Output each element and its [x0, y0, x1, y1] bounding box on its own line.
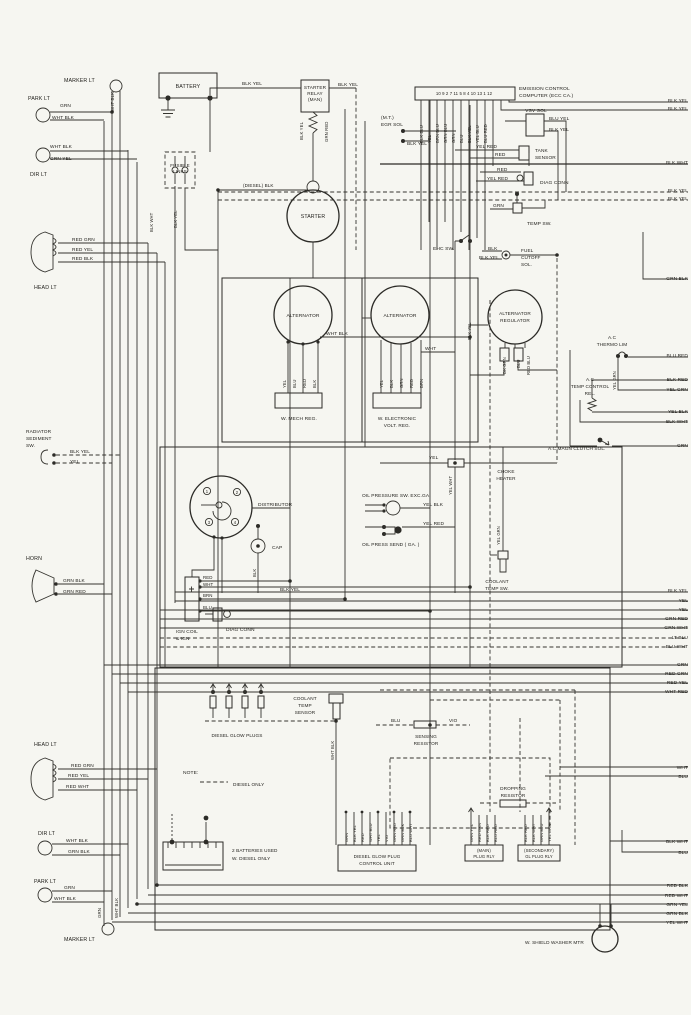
wire — [334, 719, 338, 723]
distributor-terminal-number: 4 — [234, 520, 237, 525]
wire-label: RED YEL — [72, 247, 93, 253]
head-lt-top — [31, 232, 165, 272]
distributor-terminal-number: 3 — [208, 520, 211, 525]
marker-lt-top-label: MARKER LT — [64, 78, 95, 84]
wire-label: GRN YEL — [666, 902, 688, 908]
wire — [525, 815, 549, 845]
wire-label: RED GRN — [665, 671, 688, 677]
wire-label: VIO — [384, 835, 389, 842]
starter-label: STARTER — [301, 214, 326, 220]
wire — [498, 551, 508, 559]
wire-label: GRN WHT — [664, 625, 688, 631]
coolant-temp-sw-label: COOLANT — [485, 579, 508, 584]
temp-sw-label: TEMP SW. — [527, 221, 552, 227]
wire-label: RED — [497, 167, 508, 173]
wire — [505, 254, 508, 257]
fuel-cutoff-sol-label: SOL. — [521, 262, 532, 267]
wire-label: GRN RED — [392, 823, 397, 842]
wire — [135, 902, 139, 906]
wire-label: WHT RED — [665, 689, 688, 695]
wire-label: BLK YEL — [549, 127, 569, 133]
wire-label: RED WHT — [66, 784, 89, 790]
alternator1-label: ALTERNATOR — [286, 313, 319, 319]
ign-coil-label: & IGN — [176, 636, 190, 642]
radiator-sediment-sw-label: SEDIMENT — [26, 436, 52, 442]
wire-label: BLU — [459, 135, 464, 143]
wire-label: YEL — [376, 833, 381, 842]
wire-label: BLK WHT — [531, 823, 536, 842]
wire — [393, 811, 396, 814]
dual-battery-note: W. DIESEL ONLY — [232, 856, 271, 861]
wire — [204, 816, 209, 821]
wire — [224, 611, 231, 618]
wire — [220, 536, 223, 539]
wire — [36, 108, 50, 122]
wire — [243, 684, 248, 718]
wire — [600, 440, 609, 445]
wire — [110, 80, 122, 92]
wire-label: BLK YEL — [407, 141, 427, 147]
wire — [409, 811, 412, 814]
wire-label: RED GRN — [477, 823, 482, 842]
wire — [256, 544, 260, 548]
head-lt-bottom-label: HEAD LT — [34, 742, 57, 748]
wire-label: BLU — [391, 718, 401, 723]
wire-label: GRN RED — [63, 589, 86, 595]
wire-label: WHT BLU — [368, 823, 373, 842]
wire — [258, 696, 264, 708]
wire — [428, 609, 432, 613]
fuel-cutoff-sol-label: CUTOFF — [521, 255, 541, 260]
wire — [185, 577, 199, 621]
oil-press-send-label: OIL PRESS SEND ( GA. ) — [362, 542, 420, 548]
wire — [526, 114, 544, 136]
wire-label: RED BLU — [526, 356, 531, 375]
alternator-mech — [274, 286, 470, 408]
elec-reg-label: W. ELECTRONIC — [378, 416, 417, 421]
distributor-terminal-number: 1 — [206, 489, 209, 494]
alternator2-label: ALTERNATOR — [383, 313, 416, 319]
wire-label: RED — [360, 833, 365, 842]
wire — [165, 95, 170, 100]
wire-label: WHT — [425, 346, 436, 352]
wire-label: RED — [302, 379, 307, 388]
wire — [31, 758, 53, 800]
wire — [301, 342, 304, 345]
wire-label: (DIESEL) BLK — [243, 183, 274, 188]
sensing-resistor-label: SENSING — [415, 734, 437, 739]
wire — [242, 684, 248, 718]
wire-label: GRN — [64, 885, 75, 891]
wire — [471, 815, 495, 845]
diag-conn-left-label: DIAG CONN — [226, 627, 255, 633]
wire-label: BLU — [292, 380, 297, 388]
wire-label: GRN YEL — [50, 156, 72, 162]
wire — [222, 278, 478, 442]
wire — [414, 721, 436, 728]
wire-label: GRN BLK — [666, 276, 688, 282]
wire-label: DK GRN — [502, 357, 507, 374]
egr-sol-label: EGR SOL — [381, 122, 403, 128]
wire-label: BRN BLU — [435, 124, 440, 143]
wire — [618, 358, 688, 390]
wire — [421, 100, 485, 250]
wiring-diagram-page: MARKER LTPARK LTGRNWHT BLKDIR LTWHT BLKG… — [0, 0, 691, 1015]
park-lt-bottom-label: PARK LT — [34, 879, 57, 885]
wire-label: BRN — [203, 593, 213, 598]
temp-sw — [490, 192, 545, 213]
wire — [609, 924, 613, 928]
wire-label: GRN — [451, 133, 456, 143]
wire — [513, 203, 522, 213]
wire — [469, 808, 474, 815]
wire — [52, 453, 56, 457]
wire-label: RED WHT — [665, 893, 688, 899]
wire-label: BLU — [678, 850, 688, 856]
wire-label: YEL BLU — [475, 125, 480, 143]
wire-label: YEL GRN — [666, 387, 688, 393]
wire — [32, 570, 54, 602]
tank-sensor — [380, 146, 688, 166]
mech-reg-label: W. MECH REG. — [281, 416, 317, 422]
wire-label: YEL — [679, 607, 689, 613]
wire-label: BLK YEL — [338, 82, 358, 88]
wire — [453, 461, 457, 465]
left-bus-wires — [104, 92, 218, 926]
horn — [32, 570, 112, 602]
wire-label: BLU — [678, 774, 688, 780]
alt-regulator-label: ALTERNATOR — [499, 311, 531, 316]
diesel-dashed-routing — [380, 690, 575, 845]
fusible-links-label: LINKS — [173, 169, 187, 174]
washer-motor — [592, 904, 618, 952]
ac-magn-clutch-sol — [570, 438, 688, 446]
wire-label: GRN — [60, 103, 71, 109]
wire-label: WHT — [677, 765, 688, 771]
head-lt-top-label: HEAD LT — [34, 285, 57, 291]
wire-label: GRN RED — [665, 616, 688, 622]
wire-label: BLK YEL — [280, 587, 300, 593]
wire — [102, 923, 114, 935]
wire — [401, 129, 405, 133]
wire-label: BLK WHT — [666, 839, 688, 845]
washer-motor-label: W. SHIELD WASHER MTR — [525, 940, 584, 945]
wire — [161, 100, 175, 117]
starter-relay-label: RELAY — [307, 91, 323, 96]
ecc-label: EMISSION CONTROL — [519, 86, 570, 92]
wire-label: YEL RED — [423, 521, 444, 527]
wire-label: BLK WHT — [666, 160, 688, 166]
cap-label: CAP — [272, 545, 282, 551]
trunk-wires — [104, 100, 688, 922]
egr-sol-label: (M.T.) — [381, 115, 394, 121]
wire-label: BLK YEL — [467, 322, 472, 340]
dual-battery-note: 2 BATTERIES USED — [232, 848, 278, 853]
wire-label: BLK YEL — [668, 196, 688, 202]
wire-label: YEL GRN — [612, 371, 617, 390]
wire-label: YEL — [70, 459, 80, 465]
wire — [54, 592, 58, 596]
battery-label: BATTERY — [176, 84, 201, 90]
wire — [256, 524, 260, 528]
ac-thermo-label: THERMO LIM — [597, 342, 627, 347]
wire-label: GRN — [399, 378, 404, 388]
ac-temp-control-label: REL. — [585, 391, 596, 396]
wire — [361, 811, 364, 814]
dropping-resistor-label: DROPPING — [500, 786, 526, 791]
wire-label: GRN BLK — [400, 824, 405, 842]
wire-label: WHT BLK — [330, 741, 335, 760]
tank-sensor-label: TANK — [535, 148, 549, 154]
glow-control-unit-label: CONTROL UNIT — [359, 861, 395, 866]
wire-label: YEL — [379, 379, 384, 388]
wire — [170, 840, 175, 845]
ac-thermo-label: A.C — [608, 335, 617, 340]
wire — [168, 842, 216, 848]
wire — [394, 526, 401, 533]
wire-label: BLK WHT — [149, 212, 154, 232]
wire-label: BLU RED — [667, 353, 689, 359]
wire-label: YEL RED — [476, 144, 497, 150]
starter-relay-label: (MAN) — [308, 97, 322, 102]
sensing-resistor-label: RESISTOR — [414, 741, 439, 746]
wire — [345, 811, 348, 814]
wire — [52, 461, 56, 465]
diag-conn-right-label: DIAG CONN — [540, 180, 569, 186]
wire — [211, 684, 216, 718]
wire — [309, 112, 317, 133]
wire-label: BLK YEL — [668, 588, 688, 594]
starter-relay-label: STARTER — [304, 85, 327, 90]
marker-lt-bottom-label: MARKER LT — [64, 937, 95, 943]
wire-label: BLK YEL — [299, 121, 304, 140]
coolant-temp-sensor-label: TEMP — [298, 703, 311, 708]
ac-magn-clutch-label: A.C MAGN CLUTCH SOL. — [548, 446, 605, 451]
starter — [218, 181, 339, 668]
radiator-sediment-sw-label: SW. — [26, 443, 35, 449]
wire-label: BLU — [516, 360, 521, 368]
wire — [428, 723, 432, 727]
wire — [547, 808, 552, 815]
wire — [36, 148, 50, 162]
wire — [163, 842, 223, 870]
wire — [500, 559, 506, 572]
wire-label: GRN YEL — [469, 823, 474, 842]
wire — [555, 253, 559, 257]
wire — [517, 175, 523, 181]
wire-label: WHT BLK — [326, 331, 349, 337]
wire-label: YEL — [429, 455, 439, 461]
wire — [210, 684, 216, 718]
fusible-links-label: FUSIBLE — [170, 163, 189, 168]
wire-label: BLU RED — [483, 124, 488, 143]
wire — [192, 537, 214, 577]
ecc-pin-numbers: 10 9 2 7 11 5 8 4 10 13 1 12 — [436, 91, 493, 96]
coolant-temp-sensor-label: COOLANT — [293, 696, 316, 701]
dir-lt-top-label: DIR LT — [30, 172, 48, 178]
wire — [588, 398, 596, 411]
choke-heater-label: HEATER — [496, 476, 516, 481]
wire-label: BLK YEL — [467, 125, 472, 143]
wire-label: BLK BLU — [419, 125, 424, 143]
wire-label: BLK WHT — [666, 419, 688, 425]
wire — [515, 192, 519, 196]
wire — [598, 924, 602, 928]
main-plug-rly-label: (MAIN) — [477, 848, 491, 853]
elec-reg-label: VOLT. REG. — [384, 423, 410, 428]
coolant-temp-sw-label: TEMP SW. — [485, 586, 509, 591]
wire — [41, 450, 48, 464]
coolant-temp-sensor-label: SENSOR — [295, 710, 316, 715]
distributor-cap — [251, 524, 265, 593]
wire — [470, 361, 504, 375]
wire — [31, 232, 53, 272]
wire — [226, 684, 232, 718]
wire — [286, 340, 289, 343]
dropping-resistor — [480, 800, 556, 807]
wire-label: GRN BLU — [539, 824, 544, 842]
horn-label: HORN — [26, 556, 42, 562]
ehc-sw-label: EHC SW. — [433, 246, 454, 252]
wire-label: GRN RED — [324, 121, 329, 142]
wire-label: WHT — [203, 582, 214, 587]
wire — [390, 758, 550, 828]
wire-label: GRN — [677, 662, 688, 668]
wire — [160, 447, 622, 667]
wire-label: YEL BLK — [423, 502, 444, 508]
wire — [365, 505, 384, 511]
wire-label: BLK YEL — [70, 449, 90, 455]
wire-label: VIO — [449, 718, 458, 723]
wire-label: WHT BLK — [114, 898, 119, 918]
wire — [522, 200, 545, 208]
wire-label: WHT BLK — [110, 92, 115, 112]
wire-label: BLK — [389, 380, 394, 388]
coolant-temp-sw — [490, 447, 508, 572]
radiator-sediment-sw-label: RADIATOR — [26, 429, 52, 435]
ign-coil-label: IGN COIL — [176, 629, 198, 635]
wire-label: GRN BLK — [63, 578, 85, 584]
wire — [54, 582, 58, 586]
wire-label: RED — [409, 379, 414, 388]
wire — [386, 501, 400, 515]
dir-lt-bottom-label: DIR LT — [38, 831, 56, 837]
wire-label: BLU WHT — [408, 823, 413, 842]
ecc-label: COMPUTER (ECC CA.) — [519, 93, 574, 99]
wire — [259, 684, 264, 718]
wire — [373, 393, 421, 408]
wire-label: YEL WHT — [666, 920, 688, 926]
wire — [544, 131, 558, 200]
wire-label: BLK RED — [523, 824, 528, 842]
wire — [155, 883, 159, 887]
wire — [500, 800, 526, 807]
marker-lt-bottom — [102, 923, 114, 935]
wire-label: BLU YEL — [549, 116, 570, 122]
wire-label: BLK YEL — [242, 81, 262, 87]
wire — [258, 684, 264, 718]
wire — [488, 290, 542, 344]
wire — [333, 703, 340, 719]
oil-pressure-sw-label: OIL PRESSURE SW. EXC.GA. — [362, 493, 431, 499]
wire-label: WHT BLK — [50, 144, 73, 150]
secondary-plug-rly-label: GL PLUG RLY — [525, 854, 553, 859]
note-label: NOTE: — [183, 770, 198, 776]
wire — [518, 361, 557, 370]
wire-label: BLK — [252, 569, 257, 577]
diesel-glow-plugs — [205, 684, 336, 721]
wire — [509, 100, 688, 102]
wire — [343, 597, 347, 601]
wire-label: LT BLU — [672, 635, 689, 641]
head-lt-bottom — [31, 758, 157, 800]
wire-label: RED YEL — [667, 680, 688, 686]
note-label: DIESEL ONLY — [233, 782, 265, 787]
wire-label: RED YEL — [68, 773, 89, 779]
park-lt-top — [36, 108, 112, 122]
fuel-cutoff-sol-label: FUEL — [521, 248, 534, 253]
ac-temp-control-label: A.C — [586, 377, 595, 382]
wire — [643, 232, 688, 279]
wire — [210, 88, 301, 95]
main-plug-rly-label: PLUG RLY — [473, 854, 494, 859]
wire — [377, 811, 380, 814]
wire-label: GRN BLK — [68, 849, 90, 855]
wire — [401, 139, 405, 143]
right-mid-verticals — [557, 258, 570, 463]
diesel-glow-plugs-label: DIESEL GLOW PLUGS — [211, 733, 262, 738]
glow-control-unit-label: DIESEL GLOW PLUG — [354, 854, 401, 859]
wire-label: BLK — [312, 380, 317, 388]
wire-label: RED — [495, 152, 506, 158]
wire-label: YEL GRN — [496, 526, 501, 545]
wire-label: BLK YEL — [479, 255, 499, 261]
alternator-regulator — [470, 290, 557, 375]
wire-label: WHT BLK — [54, 896, 77, 902]
wire — [329, 694, 343, 703]
wire-label: GRN BLU — [443, 124, 448, 143]
wire-label: WHT BLK — [52, 115, 75, 121]
ac-temp-control-label: TEMP CONTROL — [571, 384, 610, 389]
wire-label: BLU RED — [493, 824, 498, 842]
secondary-plug-rly-label: (SECONDARY) — [524, 848, 554, 853]
wire-label: GRN — [344, 833, 349, 842]
choke-heater-label: CHOKE — [497, 469, 514, 474]
oil-pressure-sw — [365, 501, 430, 515]
wiring-diagram: MARKER LTPARK LTGRNWHT BLKDIR LTWHT BLKG… — [0, 0, 691, 1015]
wire — [189, 587, 194, 611]
wire-label: YEL — [282, 379, 287, 388]
wire-label: RED GRN — [71, 763, 94, 769]
park-lt-top-label: PARK LT — [28, 96, 51, 102]
wire — [216, 188, 220, 192]
wire — [204, 840, 209, 845]
wire — [514, 348, 523, 361]
wire-label: BLU — [203, 605, 212, 610]
wire — [275, 393, 322, 408]
vsv-sol-label: VSV SOL — [525, 108, 547, 114]
wire-label: YEL RED — [487, 176, 508, 182]
wire — [600, 904, 611, 926]
wire — [316, 340, 319, 343]
wire — [288, 579, 292, 583]
wire — [307, 181, 319, 193]
wire-label: RED GRN — [72, 237, 95, 243]
wire-label: RED BLK — [72, 256, 94, 262]
distributor-label: DISTRIBUTOR — [258, 502, 293, 508]
wire — [185, 188, 218, 250]
wire — [242, 696, 248, 708]
